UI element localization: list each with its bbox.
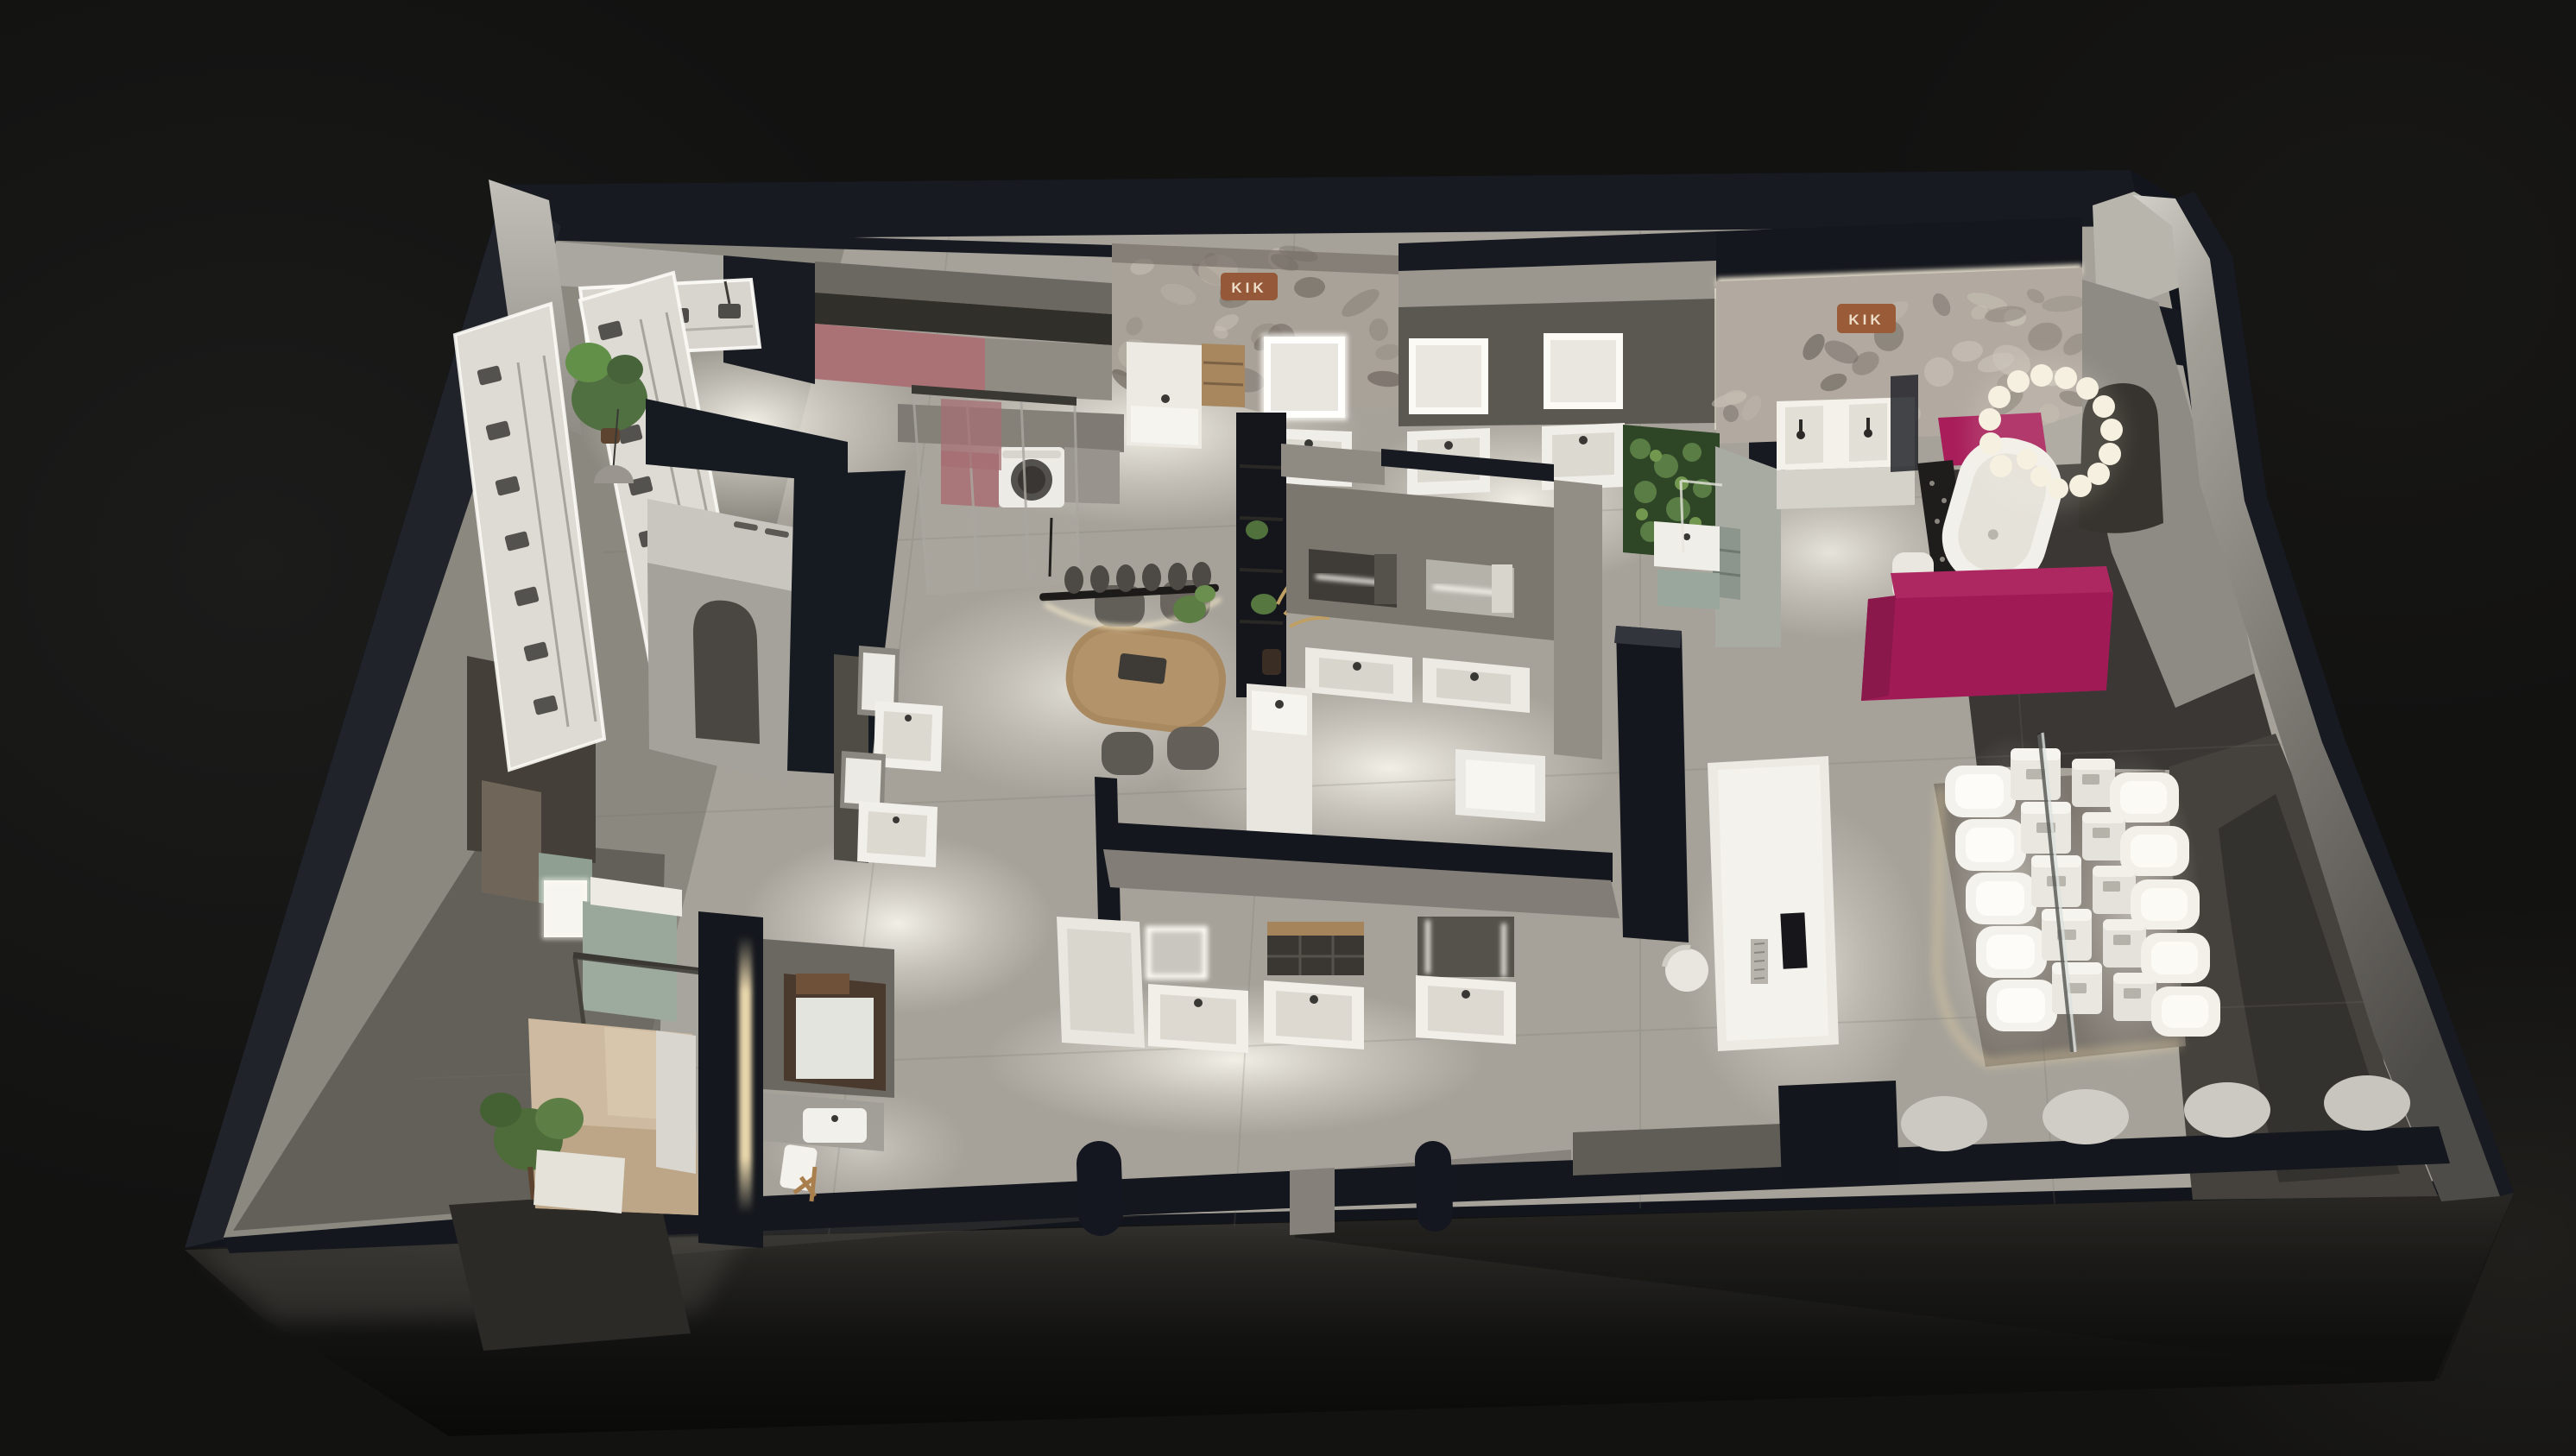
svg-text:KIK: KIK bbox=[1848, 312, 1884, 328]
svg-text:KIK: KIK bbox=[1231, 280, 1266, 296]
